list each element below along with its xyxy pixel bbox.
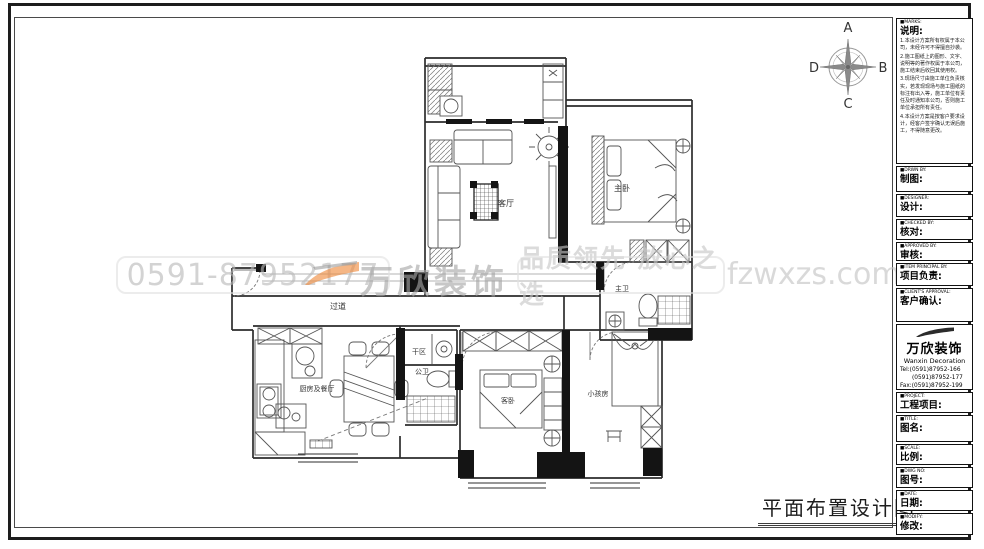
titleblock-drwn-by: ■DRWN BY: 制图:	[896, 166, 973, 192]
principal-cn: 项目负责:	[900, 271, 969, 282]
room-label-master-bath: 主卫	[615, 284, 629, 293]
titleblock-approved-by: ■APPROVED BY: 审核:	[896, 242, 973, 261]
room-labels: 客厅 主卧 主卫 过道 厨房及餐厅 干区 公卫 客卧 小孩房	[300, 183, 631, 405]
company-name-en: Wanxin Decoration	[900, 357, 969, 365]
company-tel2: (0591)87952-177	[900, 375, 969, 383]
company-fax: Fax:(0591)87952-199	[900, 383, 969, 390]
compass-rose: A C D B	[806, 18, 892, 110]
company-logo-icon	[915, 327, 955, 338]
note-1: 1.本设计方案所有权属于本公司，未经许可不得擅自抄袭。	[900, 38, 969, 53]
marks-label-cn: 说明:	[900, 26, 969, 37]
titleblock-dwg-no: ■DWG NO: 图号:	[896, 467, 973, 488]
room-label-master: 主卧	[614, 183, 630, 193]
titleblock-title: ■TITLE: 图名:	[896, 415, 973, 442]
wall-poche	[256, 119, 692, 478]
note-3: 3.现场尺寸由施工单位负责核实，若发现现场与施工图纸的标注有出入等，施工单位有责…	[900, 76, 969, 112]
dwg-no-cn: 图号:	[900, 475, 969, 486]
title-cn: 图名:	[900, 423, 969, 434]
titleblock-scale: ■SCALE: 比例:	[896, 444, 973, 465]
drawing-sheet: 客厅 主卧 主卫 过道 厨房及餐厅 干区 公卫 客卧 小孩房 A C	[0, 0, 984, 549]
titleblock-date: ■DATE: 日期:	[896, 490, 973, 511]
titleblock-checked-by: ■CHECKED BY: 核对:	[896, 219, 973, 240]
room-label-bath: 公卫	[415, 368, 429, 376]
titleblock-company: 万欣装饰 Wanxin Decoration Tel:(0591)87952-1…	[896, 324, 973, 390]
room-label-living: 客厅	[498, 198, 514, 208]
titleblock-client-approval: ■CLIENT'S APPROVAL: 客户确认:	[896, 288, 973, 322]
titleblock-project: ■PROJECT: 工程项目:	[896, 392, 973, 413]
note-2: 2.施工图纸上的图形、文字、说明等的著作权属于本公司，施工结束后收回其使用权。	[900, 54, 969, 76]
note-4: 4.本设计方案是按客户要求设计，经客户签字确认无误后施工，不得随意更改。	[900, 114, 969, 136]
date-cn: 日期:	[900, 498, 969, 509]
compass-label-w: D	[809, 61, 819, 76]
titleblock-principal: ■ITEM PRINCIPAL BY: 项目负责:	[896, 263, 973, 286]
client-approval-cn: 客户确认:	[900, 296, 969, 307]
room-label-corridor: 过道	[330, 301, 346, 311]
company-tel1: Tel:(0591)87952-166	[900, 367, 969, 375]
compass-label-s: C	[843, 97, 852, 110]
room-label-kitchen-dining: 厨房及餐厅	[300, 384, 335, 393]
compass-label-n: A	[844, 21, 853, 36]
approved-by-cn: 审核:	[900, 250, 969, 261]
title-block: ■MARKS: 说明: 1.本设计方案所有权属于本公司，未经许可不得擅自抄袭。 …	[896, 18, 973, 528]
room-label-kids: 小孩房	[588, 389, 609, 398]
checked-by-cn: 核对:	[900, 227, 969, 238]
designer-cn: 设计:	[900, 202, 969, 213]
beam-lines	[262, 274, 596, 281]
project-cn: 工程项目:	[900, 400, 969, 411]
titleblock-marks: ■MARKS: 说明: 1.本设计方案所有权属于本公司，未经许可不得擅自抄袭。 …	[896, 18, 973, 164]
company-name: 万欣装饰	[900, 338, 969, 357]
scale-cn: 比例:	[900, 452, 969, 463]
titleblock-designer: ■DESIGNER: 设计:	[896, 194, 973, 217]
drwn-by-cn: 制图:	[900, 174, 969, 185]
room-label-guest: 客卧	[501, 396, 515, 405]
titleblock-modify: ■MODIFY: 修改:	[896, 513, 973, 535]
marks-notes: 1.本设计方案所有权属于本公司，未经许可不得擅自抄袭。 2.施工图纸上的图形、文…	[900, 38, 969, 135]
modify-cn: 修改:	[900, 521, 969, 532]
room-label-dry-area: 干区	[412, 348, 426, 356]
compass-label-e: B	[879, 61, 888, 76]
